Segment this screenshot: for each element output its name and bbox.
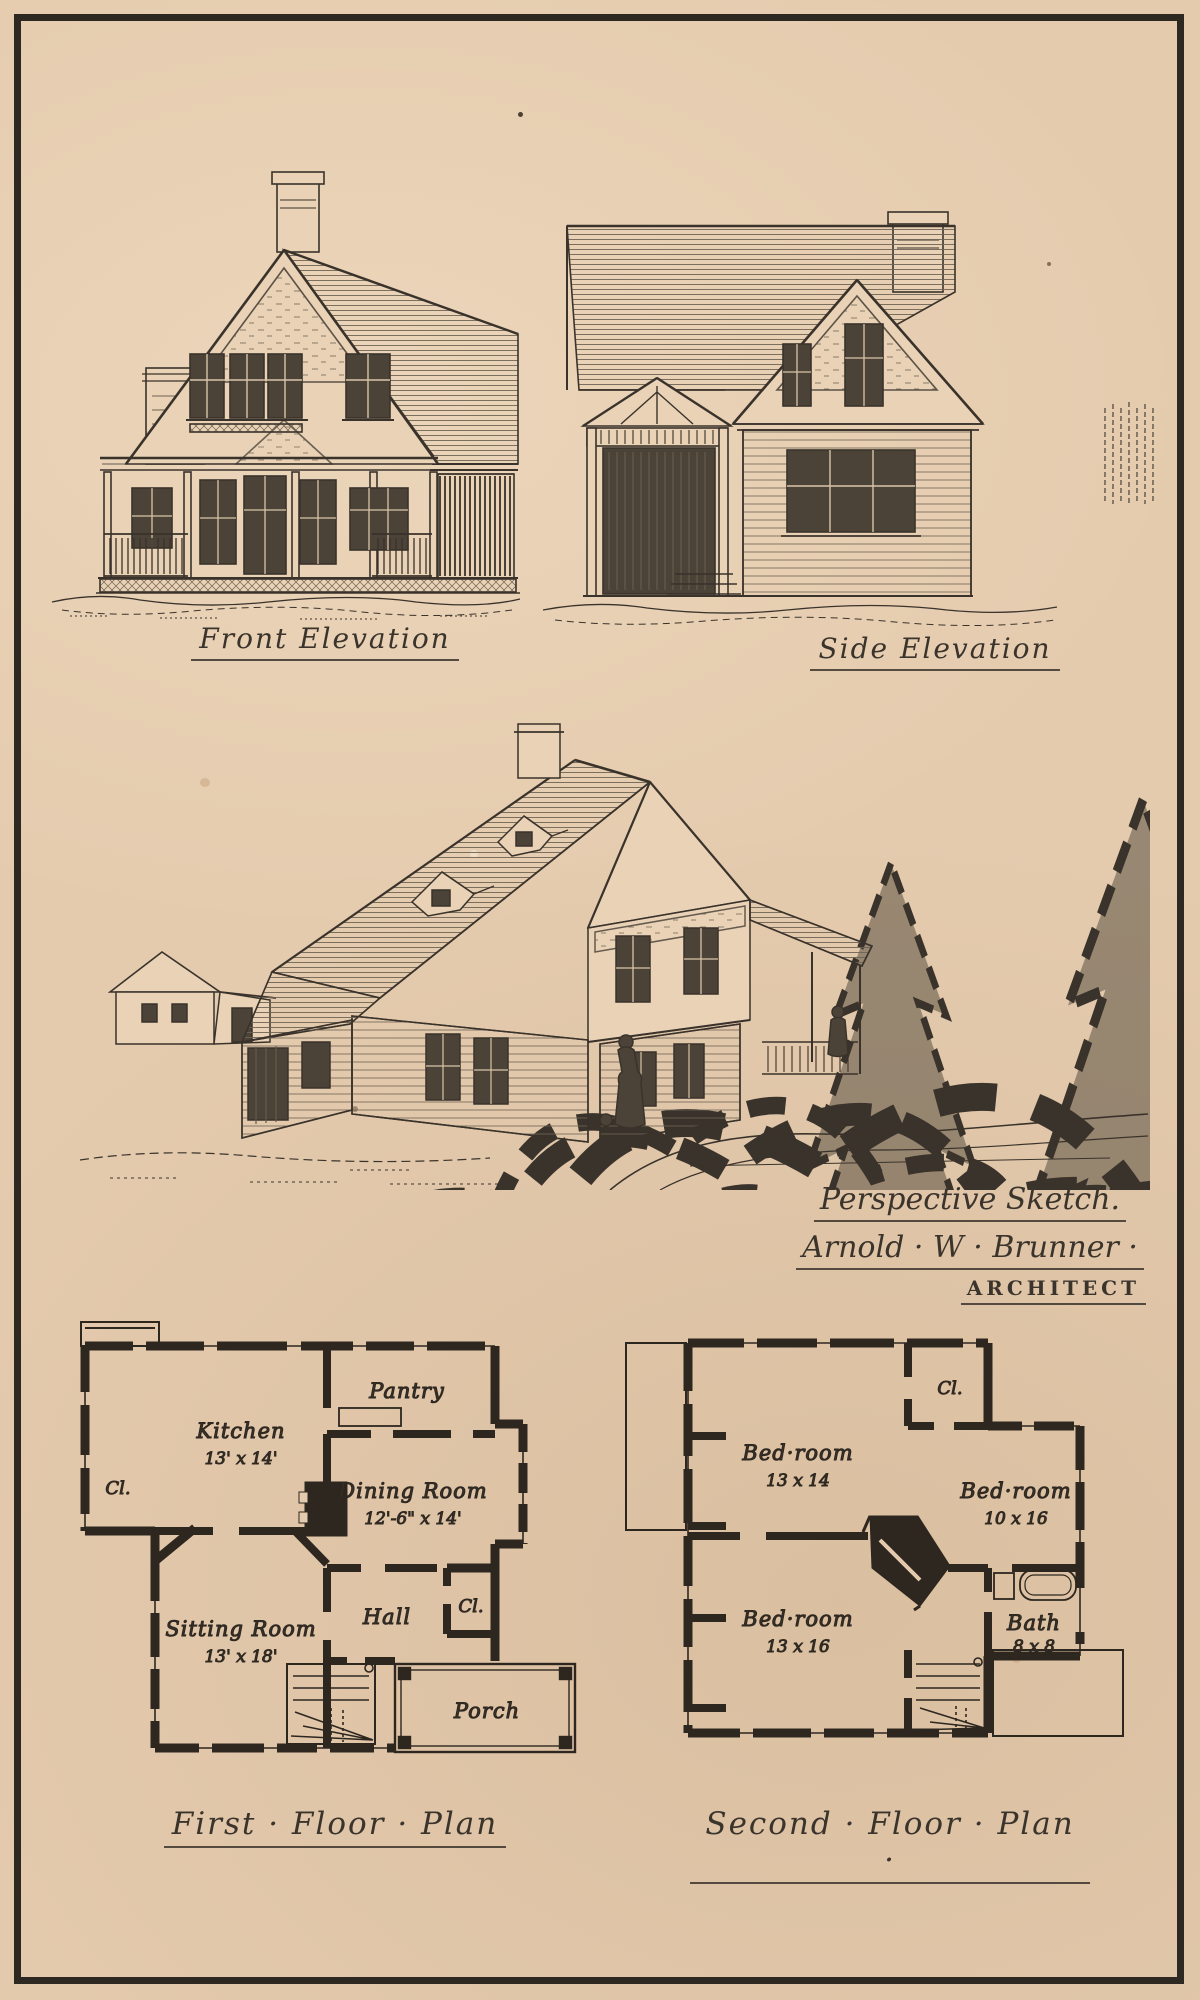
right-porch-screen — [438, 474, 514, 578]
room-label-porch: Porch — [453, 1699, 520, 1723]
room-label-bedroom3: Bed·room — [741, 1607, 853, 1631]
first-floor-plan-caption: First · Floor · Plan — [145, 1806, 525, 1848]
room-label-bedroom1: Bed·room — [741, 1441, 853, 1465]
room-dims-kitchen: 13' x 14' — [204, 1449, 277, 1469]
perspective-sketch-drawing — [50, 690, 1150, 1190]
front-elevation-drawing — [40, 158, 530, 636]
chimney — [514, 724, 564, 778]
perspective-caption-block: Perspective Sketch. Arnold · W · Brunner… — [780, 1182, 1160, 1305]
chimney — [272, 172, 324, 252]
entry-porch — [583, 378, 741, 596]
room-label-hall: Hall — [362, 1605, 411, 1629]
side-elevation-caption: Side Elevation — [770, 632, 1100, 671]
stairs — [916, 1658, 984, 1730]
room-dims-dining: 12'-6" x 14' — [364, 1509, 461, 1529]
second-floor-plan-caption: Second · Floor · Plan · — [690, 1806, 1090, 1884]
first-floor-openings — [132, 476, 408, 574]
room-label-dining: Dining Room — [337, 1479, 487, 1503]
front-elevation-caption: Front Elevation — [155, 622, 495, 661]
room-label-bath: Bath — [1006, 1611, 1061, 1635]
room-dims-bedroom1: 13 x 14 — [766, 1471, 830, 1491]
pantry-counter — [339, 1408, 401, 1426]
front-wall — [352, 1016, 588, 1142]
chimney-mass — [863, 1516, 950, 1610]
paper-speck — [518, 112, 523, 117]
right-gable — [588, 782, 750, 1042]
bath-fixtures — [994, 1570, 1076, 1600]
room-dims-bedroom2: 10 x 16 — [984, 1509, 1048, 1529]
room-label-bedroom2: Bed·room — [959, 1479, 1071, 1503]
side-wall — [743, 430, 971, 596]
room-label-closet-left: Cl. — [105, 1478, 130, 1499]
second-floor-windows — [186, 354, 394, 432]
scanned-plate-page: { "page": { "paper_color": "#e5cbae", "i… — [0, 0, 1200, 2000]
side-elevation-drawing — [525, 172, 1180, 642]
perspective-caption: Perspective Sketch. — [780, 1182, 1160, 1222]
first-floor-plan-drawing: Kitchen 13' x 14' Pantry Cl. Dining Room… — [55, 1316, 585, 1774]
room-label-kitchen: Kitchen — [195, 1419, 285, 1443]
room-dims-bath: 8 x 8 — [1013, 1637, 1055, 1657]
foundation — [96, 578, 520, 593]
room-label-sitting: Sitting Room — [165, 1617, 316, 1641]
room-label-closet-right: Cl. — [458, 1596, 483, 1617]
room-label-closet: Cl. — [937, 1378, 962, 1399]
room-dims-sitting: 13' x 18' — [204, 1647, 277, 1667]
architect-name: Arnold · W · Brunner · — [780, 1230, 1160, 1270]
second-floor-plan-drawing: Bed·room 13 x 14 Cl. Bed·room 10 x 16 Be… — [618, 1318, 1166, 1778]
architect-title: ARCHITECT — [780, 1276, 1160, 1305]
room-dims-bedroom3: 13 x 16 — [766, 1637, 830, 1657]
room-label-pantry: Pantry — [368, 1379, 445, 1403]
